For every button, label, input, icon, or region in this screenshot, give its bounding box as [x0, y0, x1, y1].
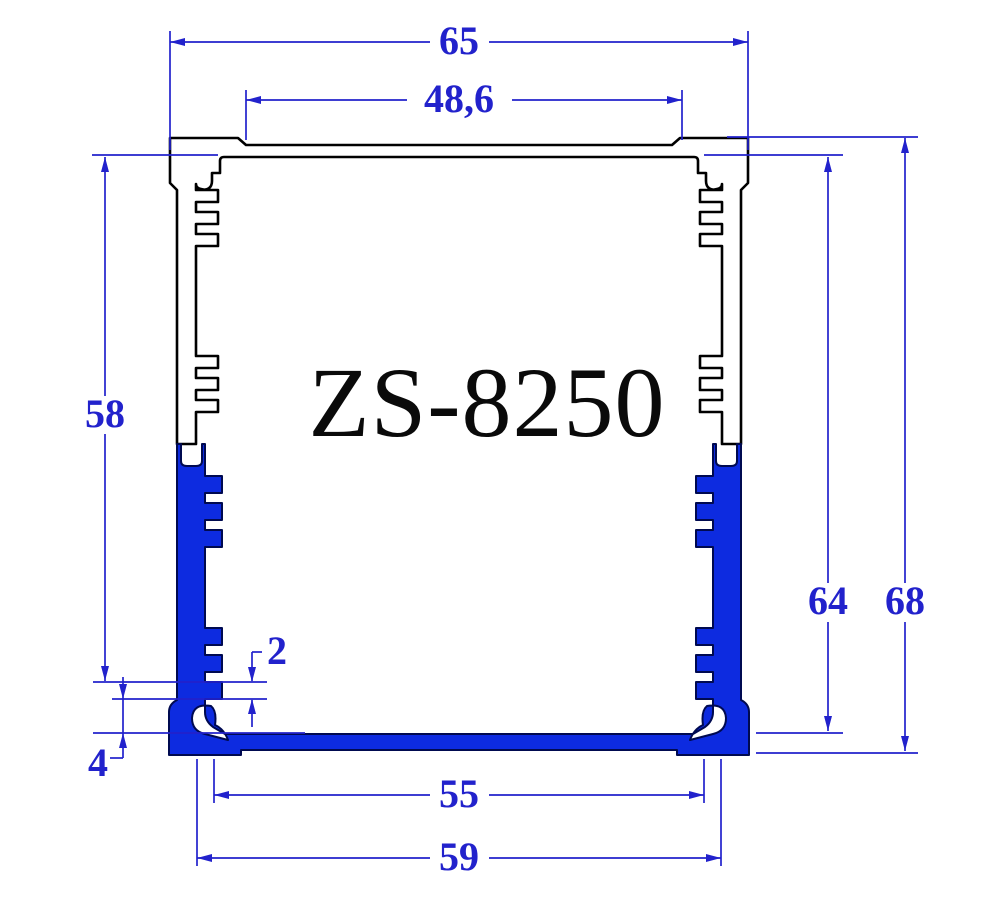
drawing-canvas: ZS-8250 65 48,6 58 64 [0, 0, 1000, 897]
dim-overall-height: 68 [727, 137, 925, 753]
arrowhead [689, 791, 704, 799]
arrowhead [824, 157, 832, 172]
arrowhead [101, 666, 109, 681]
dimension-value: 55 [439, 771, 479, 816]
dimension-value: 64 [808, 578, 848, 623]
dimension-value: 58 [85, 391, 125, 436]
arrowhead [214, 791, 229, 799]
arrowhead [901, 736, 909, 751]
dimension-value: 59 [439, 834, 479, 879]
arrowhead [667, 96, 682, 104]
arrowhead [733, 38, 748, 46]
dimension-value: 2 [267, 628, 287, 673]
arrowhead [119, 684, 127, 699]
arrowhead [246, 96, 261, 104]
arrowhead [901, 138, 909, 153]
arrowhead [197, 854, 212, 862]
arrowhead [119, 733, 127, 748]
lower-tray [169, 444, 749, 755]
dim-top-inner-width: 48,6 [246, 76, 682, 140]
arrowhead [706, 854, 721, 862]
arrowhead [248, 667, 256, 682]
dim-bottom-inner-width: 55 [214, 759, 704, 816]
arrowhead [170, 38, 185, 46]
arrowhead [824, 716, 832, 731]
profile-drawing: ZS-8250 65 48,6 58 64 [0, 0, 1000, 897]
arrowhead [101, 157, 109, 172]
model-label: ZS-8250 [309, 347, 666, 458]
dimension-value: 48,6 [424, 76, 494, 121]
dimension-value: 4 [88, 740, 108, 785]
arrowhead [248, 699, 256, 714]
dimension-value: 68 [885, 578, 925, 623]
lower-tray-shape [169, 444, 749, 755]
dimension-value: 65 [439, 18, 479, 63]
